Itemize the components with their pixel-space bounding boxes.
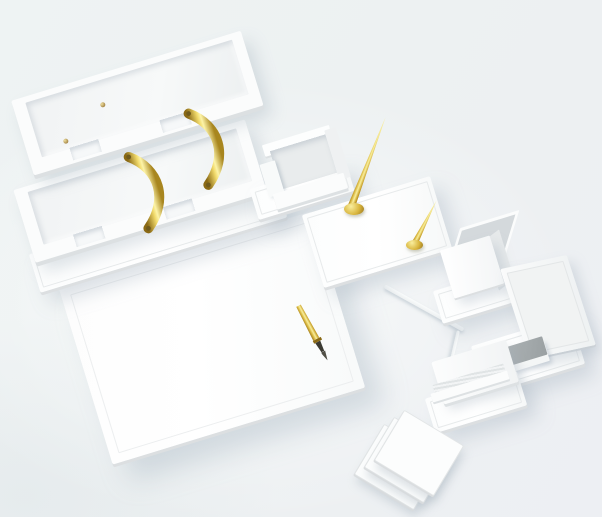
pen-socket-dome (406, 240, 423, 250)
pen-socket-dome (344, 203, 364, 215)
fountain-pen-nib (321, 350, 330, 361)
desk-set-product-photo (0, 0, 602, 517)
